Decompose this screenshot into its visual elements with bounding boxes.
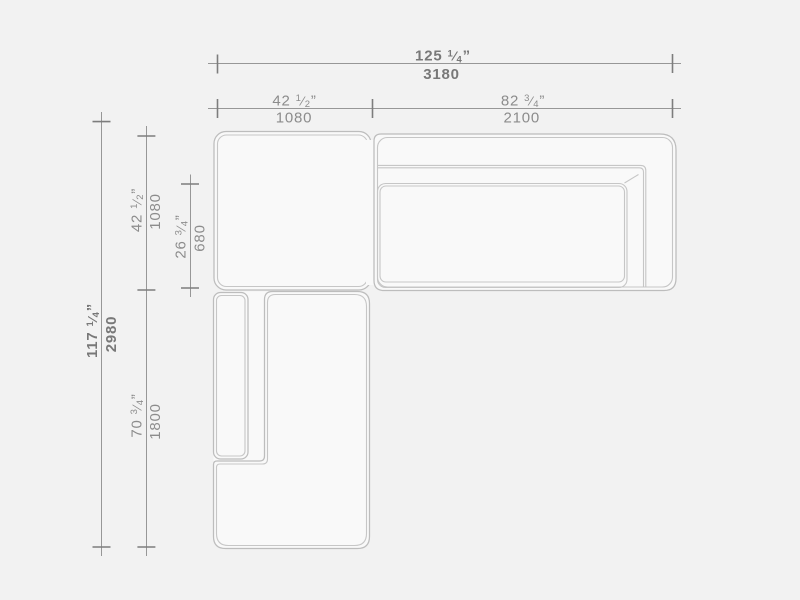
svg-text:1800: 1800	[147, 403, 164, 440]
svg-text:82 3⁄4”: 82 3⁄4”	[501, 92, 545, 110]
svg-text:42 1⁄2”: 42 1⁄2”	[272, 92, 316, 110]
svg-text:125 1⁄4”: 125 1⁄4”	[415, 48, 471, 66]
svg-text:3180: 3180	[423, 66, 460, 83]
svg-text:70 3⁄4”: 70 3⁄4”	[128, 393, 146, 437]
svg-text:2100: 2100	[504, 110, 541, 127]
svg-text:26 3⁄4”: 26 3⁄4”	[173, 214, 191, 258]
svg-text:2980: 2980	[103, 316, 120, 353]
svg-text:680: 680	[192, 224, 209, 251]
svg-text:42 1⁄2”: 42 1⁄2”	[128, 188, 146, 232]
svg-text:1080: 1080	[276, 110, 313, 127]
svg-text:1080: 1080	[147, 193, 164, 230]
svg-text:117 1⁄4”: 117 1⁄4”	[84, 303, 102, 358]
